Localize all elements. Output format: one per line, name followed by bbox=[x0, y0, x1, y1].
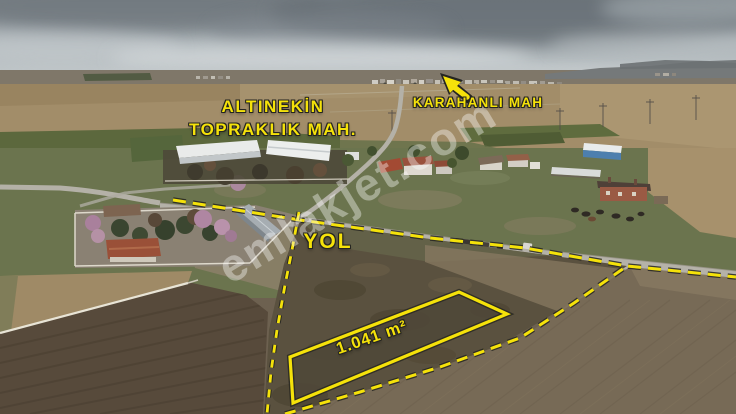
aerial-photo-listing: emlakjet.com ALTINEKİN TOPRAKLIK MAH. KA… bbox=[0, 0, 736, 414]
village-label: KARAHANLI MAH bbox=[413, 95, 543, 110]
neighborhood-label: ALTINEKİN TOPRAKLIK MAH. bbox=[189, 95, 357, 141]
road-label: YOL bbox=[303, 230, 352, 254]
aerial-photo-scenery bbox=[0, 0, 736, 414]
neighborhood-label-line1: ALTINEKİN bbox=[189, 95, 357, 118]
neighborhood-label-line2: TOPRAKLIK MAH. bbox=[189, 118, 357, 141]
